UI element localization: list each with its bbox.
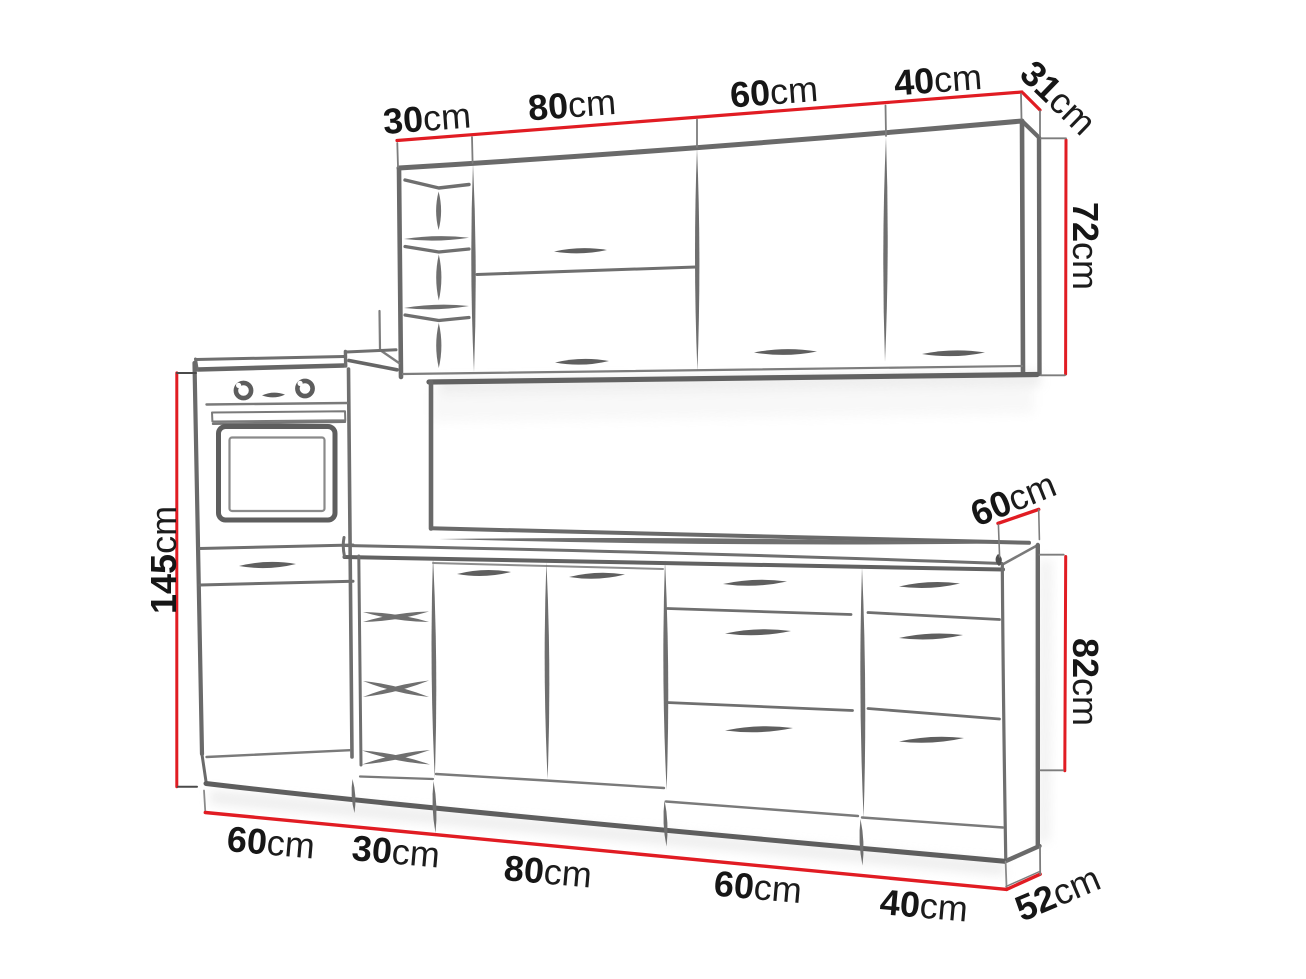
svg-text:82cm: 82cm xyxy=(1065,638,1106,726)
svg-text:60cm: 60cm xyxy=(225,818,316,867)
svg-text:80cm: 80cm xyxy=(527,81,618,128)
svg-text:60cm: 60cm xyxy=(712,863,803,912)
svg-text:60cm: 60cm xyxy=(729,68,820,115)
svg-text:30cm: 30cm xyxy=(350,827,441,876)
svg-text:40cm: 40cm xyxy=(893,56,984,103)
svg-text:145cm: 145cm xyxy=(143,506,184,614)
svg-text:80cm: 80cm xyxy=(502,847,593,896)
svg-text:40cm: 40cm xyxy=(878,881,969,930)
svg-text:30cm: 30cm xyxy=(382,94,473,141)
svg-text:72cm: 72cm xyxy=(1065,202,1106,290)
